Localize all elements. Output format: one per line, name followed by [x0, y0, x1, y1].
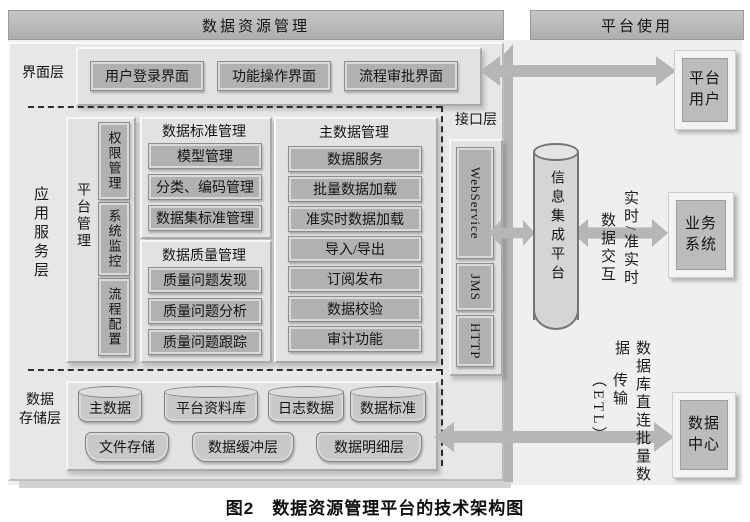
entity-platform-user-label: 平台 用户 — [682, 58, 728, 122]
box-http: HTTP — [456, 315, 494, 367]
label-db-direct-batch-data: 数据库直连批量数据 — [611, 340, 653, 490]
store-data-detail-layer: 数据明细层 — [316, 432, 422, 462]
ui-layer-label: 界面层 — [12, 65, 74, 84]
box-quality-issue-analysis: 质量问题分析 — [148, 298, 262, 324]
box-process-approval-ui: 流程审批界面 — [344, 61, 458, 91]
header-platform-usage: 平台使用 — [530, 10, 744, 40]
db-data-standards: 数据标准 — [350, 392, 426, 422]
data-standards-title: 数据标准管理 — [140, 121, 268, 141]
box-audit-function: 审计功能 — [288, 326, 422, 352]
vertical-divider-bar — [504, 44, 513, 482]
header-left-label: 数据资源管理 — [202, 15, 310, 36]
box-jms: JMS — [456, 263, 494, 311]
box-batch-data-load: 批量数据加载 — [288, 176, 422, 202]
app-service-layer-label: 应用服务层 — [30, 186, 51, 311]
dashed-line-top — [28, 106, 442, 108]
box-quality-issue-detection: 质量问题发现 — [148, 267, 262, 293]
store-file-storage: 文件存储 — [85, 432, 169, 462]
entity-data-center: 数据 中心 — [672, 392, 736, 478]
dashed-line-vertical — [441, 106, 443, 466]
box-classification-coding-mgmt: 分类、编码管理 — [148, 174, 262, 200]
architecture-diagram: 数据资源管理 平台使用 界面层 用户登录界面 功能操作界面 流程审批界面 应用服… — [0, 0, 750, 522]
db-master-data: 主数据 — [78, 392, 142, 422]
box-system-monitoring: 系统监控 — [98, 202, 130, 276]
entity-business-system-label: 业务 系统 — [676, 200, 726, 270]
header-right-label: 平台使用 — [601, 15, 673, 36]
box-function-operation-ui: 功能操作界面 — [217, 61, 331, 91]
header-data-resource-management: 数据资源管理 — [8, 10, 504, 40]
db-log-data: 日志数据 — [268, 392, 344, 422]
box-quality-issue-tracking: 质量问题跟踪 — [148, 329, 262, 355]
box-data-validation: 数据校验 — [288, 296, 422, 322]
integration-platform-cylinder: 信息集成平台 — [533, 152, 579, 320]
platform-mgmt-label: 平台管理 — [72, 182, 92, 297]
box-subscribe-publish: 订阅发布 — [288, 266, 422, 292]
box-import-export: 导入/导出 — [288, 236, 422, 262]
data-quality-title: 数据质量管理 — [140, 245, 268, 265]
dashed-line-bottom — [28, 369, 442, 371]
box-webservice: WebService — [456, 147, 494, 259]
entity-business-system: 业务 系统 — [668, 192, 734, 278]
store-data-buffer-layer: 数据缓冲层 — [192, 432, 294, 462]
box-user-login-ui: 用户登录界面 — [90, 61, 204, 91]
box-permission-mgmt: 权限管理 — [98, 122, 130, 200]
box-process-config: 流程配置 — [98, 278, 130, 356]
integration-platform-label: 信息集成平台 — [546, 170, 566, 284]
figure-caption: 图2 数据资源管理平台的技术架构图 — [0, 494, 750, 519]
label-realtime-near-realtime: 实时/准实时 — [620, 190, 641, 310]
entity-data-center-label: 数据 中心 — [680, 400, 728, 470]
label-data-interaction: 数据交互 — [597, 212, 618, 312]
api-layer-label: 接口层 — [448, 112, 504, 131]
entity-platform-user: 平台 用户 — [674, 50, 736, 130]
master-data-title: 主数据管理 — [274, 122, 434, 142]
box-dataset-standard-mgmt: 数据集标准管理 — [148, 205, 262, 231]
box-model-mgmt: 模型管理 — [148, 143, 262, 169]
storage-layer-label: 数据 存储层 — [10, 392, 70, 430]
box-data-service: 数据服务 — [288, 146, 422, 172]
box-near-realtime-data-load: 准实时数据加载 — [288, 206, 422, 232]
db-platform-repository: 平台资料库 — [164, 392, 258, 422]
